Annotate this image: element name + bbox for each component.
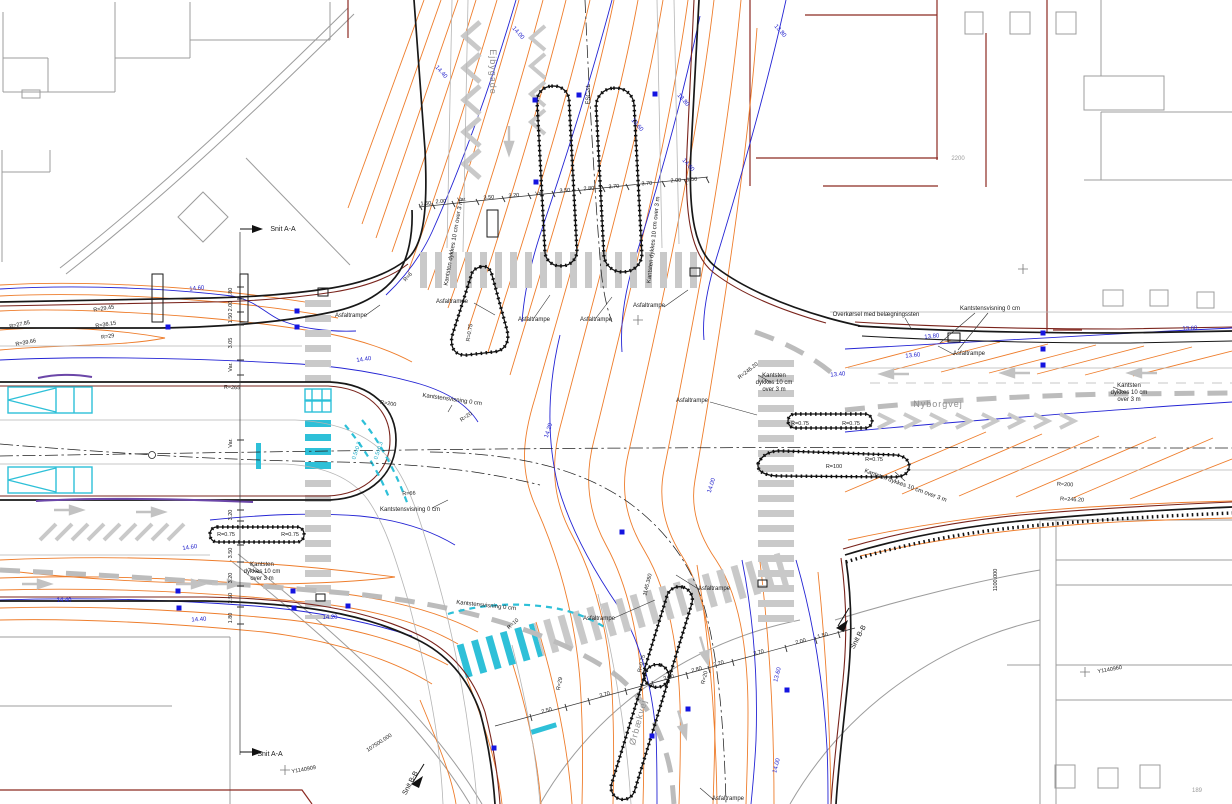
labels-layer: Snit A-ASnit A-ASnit B-BSnit B-BEjbygade… bbox=[9, 24, 1203, 802]
plan-label: Y1140960 bbox=[1097, 665, 1122, 675]
plan-label: Overkørsel med belægningssten bbox=[833, 312, 920, 318]
plan-label: FSC-st bbox=[586, 85, 592, 104]
plan-label: 13.40 bbox=[830, 371, 846, 378]
section-arrow-aa-top bbox=[252, 225, 263, 233]
plan-label: Asfaltrampe bbox=[583, 616, 616, 622]
plan-label: 189 bbox=[1192, 788, 1203, 794]
plan-label: 2.00 bbox=[795, 638, 807, 647]
plan-label: Asfaltrampe bbox=[335, 313, 368, 319]
plan-label: 13.80 bbox=[675, 93, 690, 109]
plan-label: 2200 bbox=[951, 156, 965, 162]
plan-label: Var. bbox=[457, 197, 467, 204]
plan-label: R=20 bbox=[459, 411, 473, 424]
plan-label: 3.70 bbox=[599, 691, 611, 700]
plan-label: Snit A-A bbox=[257, 751, 283, 758]
plan-label: 2.50 bbox=[541, 707, 553, 716]
crosswalk-north bbox=[420, 252, 702, 288]
drain-inlet-symbol bbox=[166, 325, 171, 330]
plan-label: 3.70 bbox=[753, 649, 765, 658]
plan-label: R=265 bbox=[224, 385, 241, 392]
plan-label: 14.20 bbox=[544, 422, 555, 439]
plan-label: R=0.75 bbox=[842, 421, 860, 427]
plan-label: R=29 bbox=[101, 333, 115, 341]
drain-inlet-symbol bbox=[1041, 363, 1046, 368]
plan-label: 13.60 bbox=[773, 666, 783, 683]
drain-inlet-symbol bbox=[785, 688, 790, 693]
plan-label: Asfaltrampe bbox=[633, 303, 666, 309]
plan-label: dykkes 10 cm bbox=[1111, 390, 1148, 396]
drain-inlet-symbol bbox=[534, 180, 539, 185]
drain-inlet-symbol bbox=[176, 589, 181, 594]
plan-canvas: Snit A-ASnit A-ASnit B-BSnit B-BEjbygade… bbox=[0, 0, 1232, 804]
plan-label: 14.40 bbox=[433, 65, 448, 81]
plan-label: R=246.20 bbox=[1060, 496, 1084, 503]
plan-label: 2.80 bbox=[583, 186, 594, 193]
plan-label: 2.80 bbox=[691, 666, 703, 675]
plan-label: 2.00 bbox=[670, 178, 681, 185]
plan-label: Kantsten bbox=[762, 373, 786, 379]
plan-label: 1.80 bbox=[228, 288, 234, 299]
plan-label: 14.60 bbox=[182, 544, 198, 552]
plan-label: R=20 bbox=[701, 671, 710, 685]
plan-label: dykkes 10 cm bbox=[756, 380, 793, 386]
plan-label: R=0.75 bbox=[865, 457, 883, 463]
plan-label: Asfaltrampe bbox=[712, 796, 745, 802]
drain-inlet-symbol bbox=[295, 325, 300, 330]
plan-label: 1.50 bbox=[817, 632, 829, 641]
plan-label: 14.00 bbox=[707, 477, 718, 494]
plan-label: 3.20 bbox=[228, 573, 234, 584]
plan-label: over 3 m bbox=[762, 387, 785, 393]
drain-inlet-symbol bbox=[292, 606, 297, 611]
plan-label: Asfaltrampe bbox=[580, 317, 613, 323]
plan-label: 13.80 bbox=[772, 24, 787, 40]
plan-drawing: Snit A-ASnit A-ASnit B-BSnit B-BEjbygade… bbox=[0, 0, 1232, 804]
plan-label: 14.40 bbox=[356, 356, 372, 364]
plan-label: Ejbygade bbox=[488, 49, 498, 95]
plan-label: 3.50 bbox=[228, 548, 234, 559]
plan-label: 14.00 bbox=[510, 26, 525, 42]
plan-label: Asfaltrampe bbox=[698, 586, 731, 592]
plan-label: Kantstensvisning 0 cm bbox=[960, 306, 1020, 312]
grid-cross-icon bbox=[1080, 667, 1090, 677]
plan-label: Kantsten bbox=[250, 562, 274, 568]
drain-inlet-symbol bbox=[346, 604, 351, 609]
section-marks bbox=[240, 225, 849, 788]
plan-label: 14.40 bbox=[191, 616, 207, 623]
plan-label: R=0.75 bbox=[281, 532, 299, 538]
plan-label: 1100.000 bbox=[993, 569, 999, 592]
plan-label: Kantstensvisning 0 cm bbox=[380, 507, 440, 513]
drain-symbols bbox=[166, 92, 1046, 751]
plan-label: 3.50 bbox=[483, 195, 494, 202]
plan-label: 14.20 bbox=[322, 615, 338, 621]
plan-label: 3.05 bbox=[228, 338, 234, 349]
plan-label: Kantsten bbox=[1117, 383, 1141, 389]
drain-inlet-symbol bbox=[177, 606, 182, 611]
light-rail-crossing-box-2 bbox=[305, 401, 331, 412]
plan-label: 2.00 bbox=[228, 301, 234, 312]
plan-label: Var. bbox=[228, 438, 234, 448]
plan-label: 1.50 bbox=[686, 177, 697, 184]
drain-inlet-symbol bbox=[620, 530, 625, 535]
drain-inlet-symbol bbox=[295, 309, 300, 314]
plan-label: 3.70 bbox=[608, 184, 619, 191]
plan-label: 3.20 bbox=[228, 510, 234, 521]
grid-cross-icon bbox=[280, 765, 290, 775]
drain-inlet-symbol bbox=[686, 707, 691, 712]
plan-label: 107500.000 bbox=[366, 733, 394, 754]
plan-label: 14.60 bbox=[189, 285, 205, 293]
plan-label: over 3 m bbox=[1117, 397, 1140, 403]
plan-label: 1.80 bbox=[228, 613, 234, 624]
plan-label: 14.40 bbox=[56, 598, 72, 604]
plan-label: Asfaltrampe bbox=[676, 398, 709, 404]
plan-label: Var. bbox=[535, 191, 545, 198]
drain-inlet-symbol bbox=[492, 746, 497, 751]
plan-label: R=0.75 bbox=[466, 323, 475, 342]
drain-inlet-symbol bbox=[577, 93, 582, 98]
drain-inlet-symbol bbox=[1041, 331, 1046, 336]
grid-cross-icon bbox=[1018, 264, 1028, 274]
plan-label: 1.50 bbox=[420, 201, 431, 208]
plan-label: Var. bbox=[228, 362, 234, 372]
plan-label: 3.50 bbox=[559, 188, 570, 195]
plan-label: R=0.75 bbox=[791, 421, 809, 427]
drain-inlet-symbol bbox=[650, 734, 655, 739]
plan-label: R=6 bbox=[403, 272, 414, 284]
plan-label: R=66 bbox=[402, 491, 416, 498]
plan-label: 3.20 bbox=[713, 660, 725, 669]
plan-label: Asfaltrampe bbox=[518, 317, 551, 323]
grid-cross-icon bbox=[633, 315, 643, 325]
plan-label: 3.20 bbox=[508, 193, 519, 200]
light-rail-crossing-box-1 bbox=[305, 389, 331, 400]
plan-label: Y1140909 bbox=[291, 765, 316, 775]
plan-label: Asfaltrampe bbox=[953, 351, 986, 357]
plan-label: Nyborgvej bbox=[913, 399, 963, 409]
drain-inlet-symbol bbox=[1041, 347, 1046, 352]
plan-label: Snit B-B bbox=[850, 624, 868, 650]
plan-label: 13.60 bbox=[1182, 326, 1198, 333]
plan-label: Asfaltrampe bbox=[436, 299, 469, 305]
plan-label: 2.50 bbox=[228, 593, 234, 604]
plan-label: R=29.45 bbox=[93, 304, 115, 313]
plan-label: dykkes 10 cm bbox=[244, 569, 281, 575]
plan-label: over 3 m bbox=[250, 576, 273, 582]
drain-inlet-symbol bbox=[291, 589, 296, 594]
drain-inlet-symbol bbox=[653, 92, 658, 97]
plan-label: 2.00 bbox=[435, 199, 446, 206]
plan-label: R=29 bbox=[556, 677, 565, 691]
plan-label: Snit A-A bbox=[270, 226, 296, 233]
light-rail-stop-bar bbox=[531, 722, 557, 734]
drain-inlet-symbol bbox=[533, 98, 538, 103]
plan-label: R=200 bbox=[380, 400, 397, 408]
plan-label: Kantstensvisning 0 cm bbox=[422, 393, 482, 407]
plan-label: R=246.20 bbox=[737, 361, 760, 381]
light-rail-stop-bar bbox=[256, 443, 261, 469]
plan-label: R=100 bbox=[826, 464, 842, 470]
plan-label: 1.50 bbox=[228, 313, 234, 324]
plan-label: 3.50 bbox=[663, 674, 675, 683]
plan-label: R=200 bbox=[1057, 482, 1074, 489]
plan-label: R=0.75 bbox=[217, 532, 235, 538]
plan-label: 3.70 bbox=[641, 181, 652, 188]
plan-label: 13.60 bbox=[905, 352, 921, 360]
